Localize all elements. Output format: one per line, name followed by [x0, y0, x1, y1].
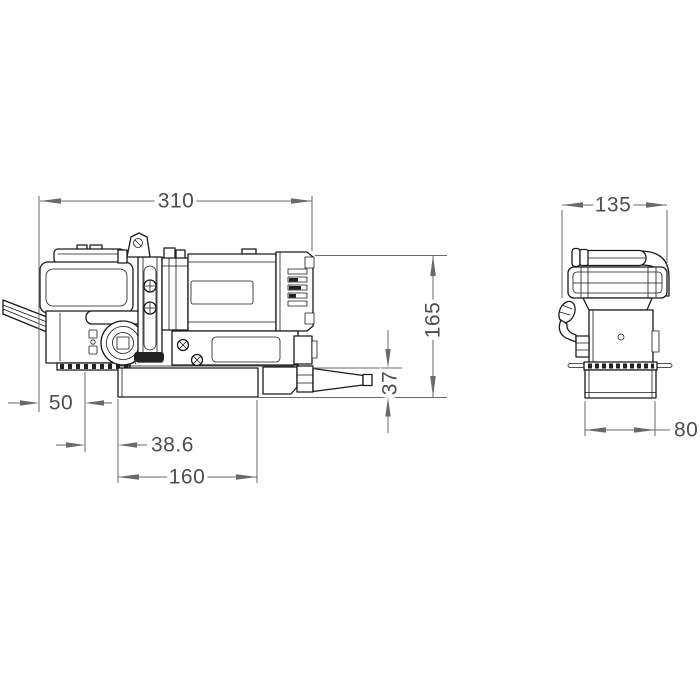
side-rib-strip	[568, 362, 672, 370]
handle-hub-bar	[86, 311, 142, 324]
rear-vent-cap	[276, 252, 314, 331]
side-view-machine	[556, 249, 672, 399]
gear-housing	[172, 331, 317, 366]
dim-side-width-label: 135	[595, 194, 632, 217]
drawing-canvas: 310 50 38.6 160 165	[0, 0, 700, 700]
arbor-spindle	[297, 366, 372, 392]
clamp-lever	[556, 299, 589, 357]
dim-height-label: 165	[422, 302, 445, 339]
motor-body	[188, 249, 276, 331]
dim-spindle-height-label: 37	[379, 371, 402, 395]
side-body	[583, 298, 659, 363]
side-magnet-base	[585, 370, 656, 398]
rail-foot	[134, 352, 164, 362]
gearbox-neck	[162, 258, 188, 330]
dim-left-overhang: 50	[8, 372, 112, 452]
dim-base-length-label: 160	[169, 466, 206, 489]
dim-left-overhang-label: 50	[49, 392, 73, 415]
slide-rail	[134, 257, 164, 362]
front-view-machine	[3, 233, 372, 397]
magnet-base	[118, 366, 297, 397]
motor-top-cap	[54, 245, 124, 263]
dim-overall-length-label: 310	[158, 190, 195, 213]
head-cap	[568, 267, 667, 298]
dim-side-base-width-label: 80	[674, 419, 698, 442]
dim-side-base-width: 80	[585, 401, 698, 442]
dim-spindle-offset-label: 38.6	[151, 434, 194, 457]
